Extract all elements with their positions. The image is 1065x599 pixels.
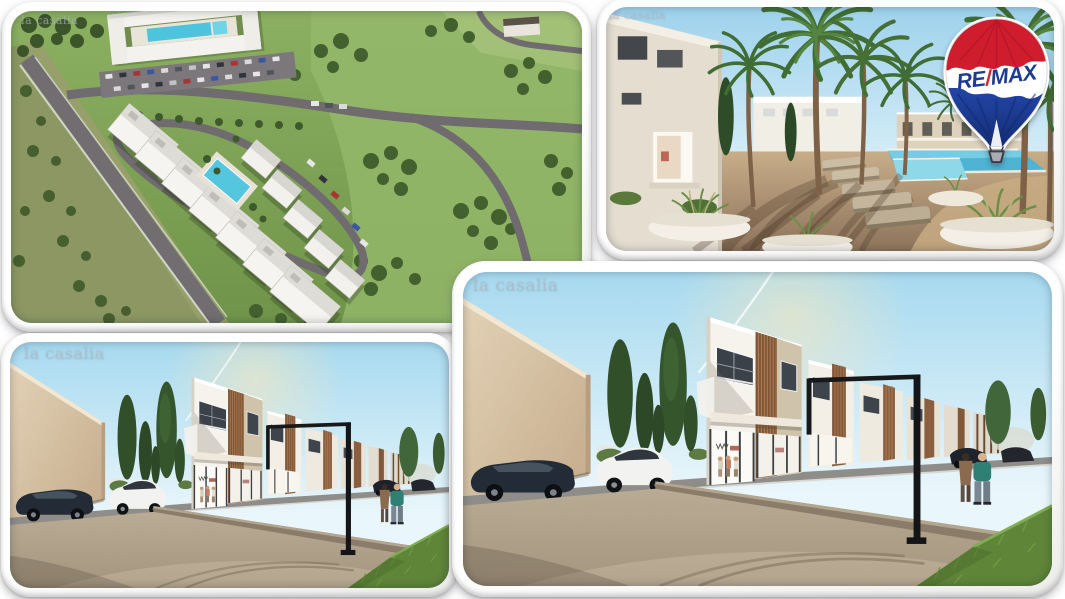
photo-street-view-large-image: la casalia — [463, 272, 1052, 586]
photo-street-view-small-image: la casalia — [10, 342, 449, 588]
watermark: la casalia — [21, 14, 78, 27]
street-rendering-art — [10, 342, 449, 588]
street-rendering-art — [463, 272, 1052, 586]
watermark: la casalia — [24, 344, 105, 363]
cypress-tree — [718, 77, 734, 155]
watermark: la casalia — [609, 9, 666, 22]
outbuilding — [503, 16, 540, 36]
photo-street-view-large: la casalia — [452, 261, 1063, 597]
balloon-basket — [989, 151, 1004, 162]
real-estate-photo-collage: la casalia — [0, 0, 1065, 599]
cypress-tree — [785, 103, 797, 162]
watermark: la casalia — [473, 276, 559, 296]
remax-balloon-logo: RE/MAX — [930, 16, 1063, 164]
photo-street-view-small: la casalia — [1, 333, 458, 597]
remax-balloon-icon: RE/MAX — [930, 16, 1063, 164]
